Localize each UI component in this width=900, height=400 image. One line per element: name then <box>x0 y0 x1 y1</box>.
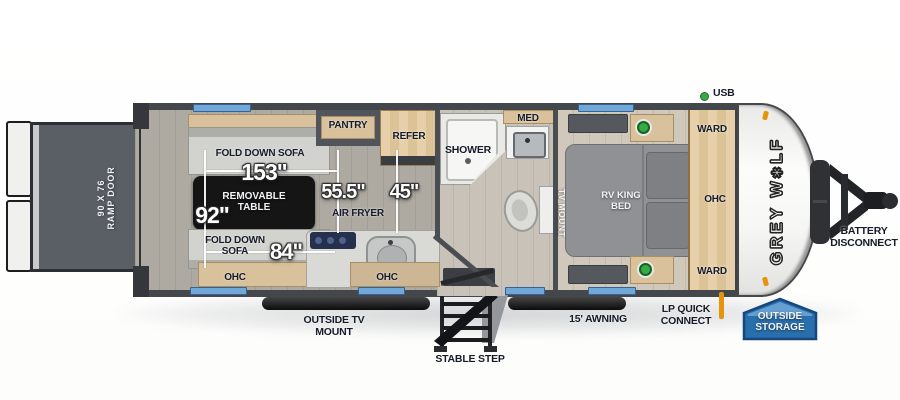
window-bottom-hall <box>505 287 545 295</box>
ward-bottom-label: WARD <box>690 266 734 277</box>
nightstand-bottom <box>630 256 674 284</box>
dim-153: 153" <box>229 159 299 186</box>
ramp-door <box>30 122 139 272</box>
garage-ohc-label: OHC <box>213 272 257 283</box>
ramp-size-text: 90 X 76 <box>96 152 106 244</box>
outside-tv-mount-label: OUTSIDE TV MOUNT <box>299 315 369 339</box>
refer-label: REFER <box>384 131 434 142</box>
rear-corner-post-top <box>133 103 149 129</box>
stable-step-label: STABLE STEP <box>434 354 506 366</box>
ramp-door-text: RAMP DOOR <box>106 152 116 244</box>
outside-storage-label: OUTSIDE STORAGE <box>748 311 812 333</box>
cupholder-indicator-bottom <box>639 263 652 276</box>
window-bottom-bedroom <box>588 287 636 295</box>
rear-frame-line <box>139 127 141 269</box>
garage-ohc-top <box>188 114 330 128</box>
brand-logo: GREY W✱LF <box>767 108 789 294</box>
ramp-door-label: 90 X 76 RAMP DOOR <box>96 152 122 244</box>
dim-555: 55.5" <box>313 181 373 204</box>
dim-84: 84" <box>256 239 316 265</box>
ramp-bumper-pad-top <box>6 121 32 197</box>
bath-vanity <box>506 126 549 159</box>
bath-wall <box>435 110 440 238</box>
window-bottom-kitchen <box>358 287 405 295</box>
dim-92: 92" <box>182 202 242 229</box>
air-fryer-label: AIR FRYER <box>330 208 386 219</box>
dim-45: 45" <box>379 181 429 204</box>
fold-down-sofa-top-label: FOLD DOWN SOFA <box>204 148 316 159</box>
paw-icon: ✱ <box>769 164 785 179</box>
entry-doorway <box>437 287 505 296</box>
pantry-label: PANTRY <box>323 120 373 131</box>
lp-pipe <box>719 292 724 319</box>
usb-label: USB <box>713 88 747 100</box>
brand-text-1: GREY W <box>767 178 786 265</box>
rv-king-bed-label: RV KING BED <box>596 190 646 212</box>
bedroom-dresser-bottom <box>568 265 628 284</box>
rear-corner-post-bottom <box>133 266 149 297</box>
stable-step <box>432 291 512 355</box>
cupholder-indicator-top <box>637 121 650 134</box>
ramp-door-edge <box>33 125 39 269</box>
window-top-bedroom <box>578 104 634 112</box>
awning-bar-right <box>508 297 626 310</box>
ward-top-label: WARD <box>690 124 734 135</box>
bedroom-ohc-label: OHC <box>694 194 736 205</box>
usb-indicator <box>700 92 709 101</box>
stove <box>310 232 356 249</box>
rv-floorplan: 90 X 76 RAMP DOOR FOLD DOWN SOFA REMOVAB… <box>0 0 900 400</box>
window-bottom-garage <box>190 287 247 295</box>
brand-text-2: LF <box>767 137 786 164</box>
kitchen-ohc-label: OHC <box>366 272 408 283</box>
lp-quick-connect-label: LP QUICK CONNECT <box>655 304 717 328</box>
ramp-bumper-pad-bottom <box>6 200 32 272</box>
tv-mount-label: TV MOUNT <box>557 178 567 248</box>
awning-label: 15' AWNING <box>562 314 634 326</box>
bedroom-dresser-top <box>568 114 628 133</box>
med-label: MED <box>506 113 550 124</box>
window-top-garage <box>193 104 251 112</box>
awning-bar-left <box>262 297 430 310</box>
battery-disconnect-label: BATTERY DISCONNECT <box>822 226 900 250</box>
shower-label: SHOWER <box>438 145 498 157</box>
